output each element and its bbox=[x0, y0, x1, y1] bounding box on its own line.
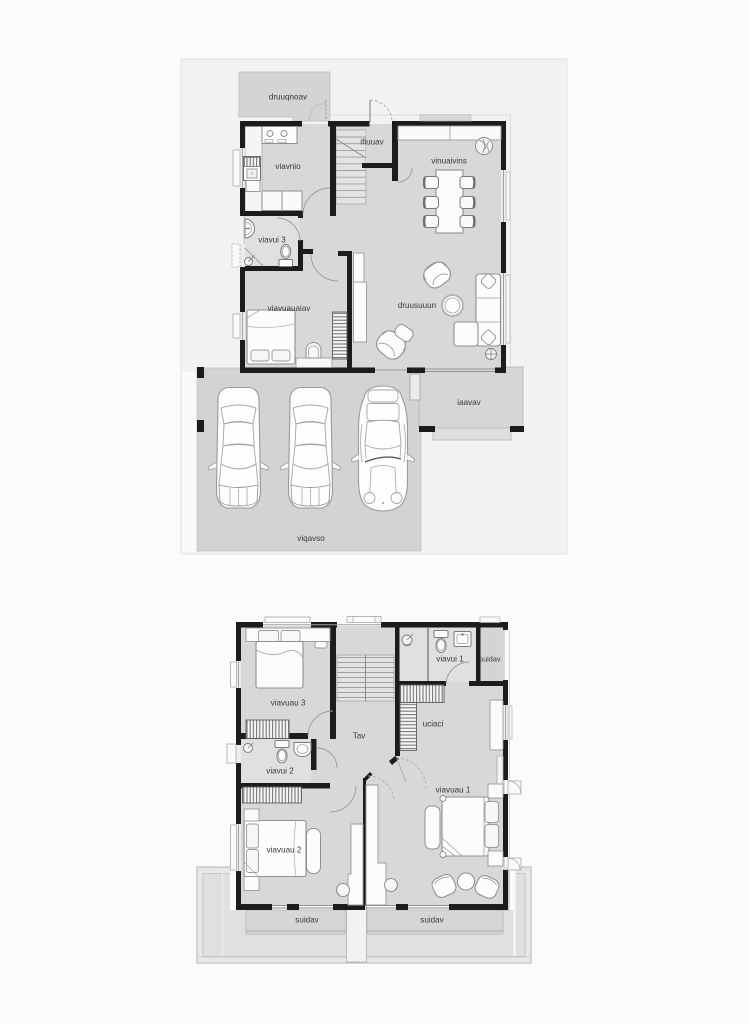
svg-text:suidav: suidav bbox=[479, 655, 500, 664]
svg-text:viavuau 1: viavuau 1 bbox=[436, 786, 471, 795]
svg-text:viavui 1: viavui 1 bbox=[436, 655, 464, 664]
svg-text:uciaci: uciaci bbox=[423, 720, 444, 729]
svg-text:vinuaivins: vinuaivins bbox=[431, 157, 467, 166]
svg-text:Tav: Tav bbox=[353, 732, 367, 741]
svg-text:viavuauaiav: viavuauaiav bbox=[268, 304, 312, 313]
svg-text:ifiuuav: ifiuuav bbox=[360, 138, 384, 147]
svg-text:viavui 2: viavui 2 bbox=[266, 767, 294, 776]
svg-text:viavuau 2: viavuau 2 bbox=[267, 846, 302, 855]
svg-text:viavuau 3: viavuau 3 bbox=[271, 699, 306, 708]
svg-text:viqavso: viqavso bbox=[297, 534, 325, 543]
svg-text:viavui 3: viavui 3 bbox=[258, 236, 286, 245]
svg-text:suidav: suidav bbox=[420, 916, 444, 925]
svg-text:druuqnoav: druuqnoav bbox=[269, 93, 308, 102]
svg-text:druusuuun: druusuuun bbox=[398, 301, 436, 310]
svg-text:iaavav: iaavav bbox=[457, 398, 481, 407]
svg-text:suidav: suidav bbox=[295, 916, 319, 925]
svg-text:viavnio: viavnio bbox=[275, 162, 301, 171]
